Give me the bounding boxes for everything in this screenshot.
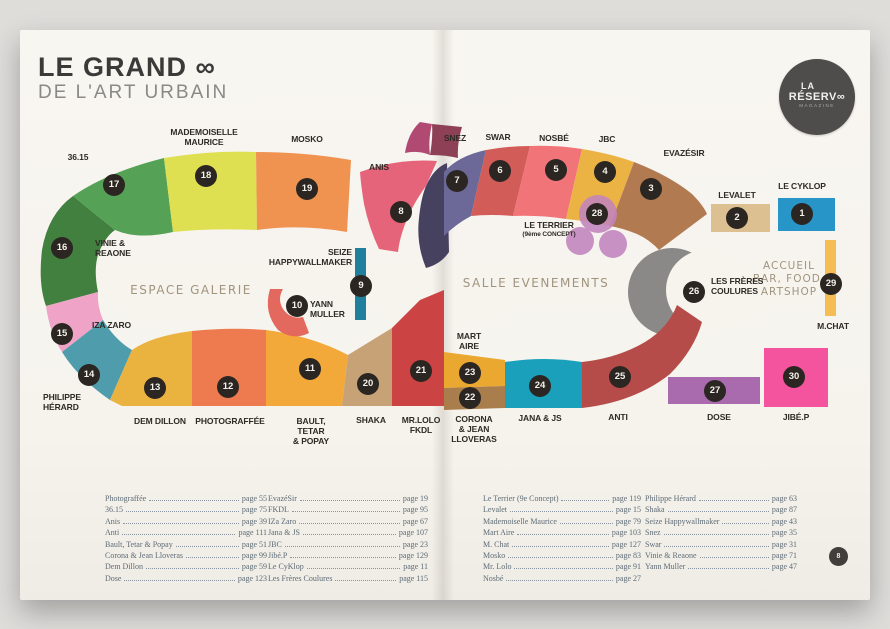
page-title: LE GRAND ∞ DE L'ART URBAIN (38, 52, 228, 104)
toc-name: M. Chat (483, 540, 509, 549)
toc-leader (124, 574, 234, 581)
booth-22-label: CORONA & JEAN LLOVERAS (451, 414, 496, 444)
booth-9-badge: 9 (350, 275, 372, 297)
toc-page: page 43 (772, 517, 797, 526)
booth-26-label: LES FRÈRES COULURES (711, 276, 763, 296)
toc-page: page 47 (772, 562, 797, 571)
toc-entry: Dem Dillonpage 59 (105, 562, 267, 573)
toc-entry: M. Chatpage 127 (483, 540, 641, 551)
toc-name: Vinie & Reaone (645, 551, 697, 560)
toc-column-4: Philippe Hérardpage 63 Shakapage 87 Seiz… (645, 494, 797, 574)
toc-entry: Jana & JSpage 107 (268, 528, 428, 539)
zone-label-accueil: ACCUEIL BAR, FOOD, ARTSHOP (753, 260, 825, 299)
toc-page: page 27 (616, 574, 641, 583)
toc-page: page 19 (403, 494, 428, 503)
toc-entry: JBCpage 23 (268, 540, 428, 551)
toc-entry: Shakapage 87 (645, 505, 797, 516)
booth-12-badge: 12 (217, 376, 239, 398)
toc-name: Bault, Tetar & Popay (105, 540, 173, 549)
toc-leader (664, 540, 768, 547)
toc-page: page 11 (403, 562, 428, 571)
toc-entry: Mademoiselle Mauricepage 79 (483, 517, 641, 528)
toc-entry: Jibé.Ppage 129 (268, 551, 428, 562)
toc-name: Jibé.P (268, 551, 287, 560)
toc-page: page 67 (403, 517, 428, 526)
toc-leader (664, 528, 769, 535)
booth-28-badge: 28 (586, 203, 608, 225)
booth-2-badge: 2 (726, 207, 748, 229)
title-line1: LE GRAND ∞ (38, 52, 228, 82)
booth-16-label: VINIE & REAONE (95, 238, 131, 258)
booth-14-badge: 14 (78, 364, 100, 386)
booth-3-badge: 3 (640, 178, 662, 200)
booth-16-badge: 16 (51, 237, 73, 259)
booth-13-label: DEM DILLON (134, 416, 186, 426)
toc-leader (506, 574, 612, 581)
toc-entry: Moskopage 83 (483, 551, 641, 562)
booth-30-badge: 30 (783, 366, 805, 388)
booth-7-label: SNEZ (444, 133, 466, 143)
toc-entry: Philippe Hérardpage 63 (645, 494, 797, 505)
booth-2-label: LEVALET (718, 190, 755, 200)
toc-page: page 35 (772, 528, 797, 537)
toc-name: Seize Happywallmaker (645, 517, 719, 526)
toc-page: page 63 (772, 494, 797, 503)
toc-entry: Antipage 111 (105, 528, 267, 539)
booth-21-shape (392, 290, 444, 406)
toc-leader (299, 517, 400, 524)
toc-entry: Anispage 39 (105, 517, 267, 528)
toc-leader (123, 517, 239, 524)
booth-11-badge: 11 (299, 358, 321, 380)
toc-column-3: Le Terrier (9e Concept)page 119 Levaletp… (483, 494, 641, 585)
booth-18-badge: 18 (195, 165, 217, 187)
toc-leader (688, 562, 769, 569)
magazine-photo: LE GRAND ∞ DE L'ART URBAIN LA RÉSERV∞ MA… (0, 0, 890, 629)
toc-leader (668, 505, 769, 512)
toc-name: Yann Muller (645, 562, 685, 571)
booth-17-badge: 17 (103, 174, 125, 196)
toc-page: page 83 (616, 551, 641, 560)
toc-page: page 129 (399, 551, 428, 560)
booth-10-badge: 10 (286, 295, 308, 317)
toc-name: Jana & JS (268, 528, 300, 537)
toc-page: page 127 (612, 540, 641, 549)
toc-leader (508, 551, 613, 558)
toc-entry: Snezpage 35 (645, 528, 797, 539)
toc-name: 36.15 (105, 505, 123, 514)
booth-11-label: BAULT, TETAR & POPAY (293, 416, 329, 446)
toc-leader (290, 551, 396, 558)
booth-26-badge: 26 (683, 281, 705, 303)
booth-13-badge: 13 (144, 377, 166, 399)
toc-name: Nosbé (483, 574, 503, 583)
zone-label-salle-evenements: SALLE EVENEMENTS (463, 276, 610, 290)
toc-leader (292, 505, 400, 512)
toc-page: page 55 (242, 494, 267, 503)
toc-entry: 36.15page 75 (105, 505, 267, 516)
toc-leader (285, 540, 400, 547)
toc-page: page 79 (616, 517, 641, 526)
toc-entry: Bault, Tetar & Popaypage 51 (105, 540, 267, 551)
toc-leader (186, 551, 239, 558)
booth-30-label: JIBÉ.P (783, 412, 809, 422)
booth-27-badge: 27 (704, 380, 726, 402)
title-line2: DE L'ART URBAIN (38, 82, 228, 104)
toc-name: Anti (105, 528, 119, 537)
toc-page: page 91 (616, 562, 641, 571)
booth-21-label: MR.LOLO FKDL (402, 415, 441, 435)
toc-name: Photograffée (105, 494, 146, 503)
booth-28-label-main: LE TERRIER (524, 220, 574, 230)
toc-page: page 51 (242, 540, 267, 549)
toc-entry: IZa Zaropage 67 (268, 517, 428, 528)
toc-page: page 115 (399, 574, 428, 583)
toc-name: Shaka (645, 505, 665, 514)
booth-4-label: JBC (599, 134, 616, 144)
toc-page: page 107 (399, 528, 428, 537)
booth-4-badge: 4 (594, 161, 616, 183)
toc-column-2: EvazéSirpage 19 FKDLpage 95 IZa Zaropage… (268, 494, 428, 585)
toc-leader (146, 562, 239, 569)
toc-page: page 99 (242, 551, 267, 560)
toc-page: page 95 (403, 505, 428, 514)
booth-24-label: JANA & JS (518, 413, 561, 423)
toc-page: page 119 (612, 494, 641, 503)
toc-leader (561, 494, 609, 501)
toc-leader (126, 505, 239, 512)
toc-leader (176, 540, 239, 547)
toc-name: Anis (105, 517, 120, 526)
logo-line1: LA (779, 81, 855, 91)
toc-entry: Yann Mullerpage 47 (645, 562, 797, 573)
booth-19-badge: 19 (296, 178, 318, 200)
toc-entry: Corona & Jean Lloveraspage 99 (105, 551, 267, 562)
toc-name: Philippe Hérard (645, 494, 696, 503)
booth-18-label: MADEMOISELLE MAURICE (170, 127, 237, 147)
logo-line3: MAGAZINE (779, 103, 855, 108)
booth-10-label: YANN MULLER (310, 299, 345, 319)
toc-name: Dem Dillon (105, 562, 143, 571)
booth-20-label: SHAKA (356, 415, 386, 425)
booth-17-label: 36.15 (68, 152, 89, 162)
booth-21-badge: 21 (410, 360, 432, 382)
toc-name: Levalet (483, 505, 507, 514)
toc-leader (300, 494, 400, 501)
toc-page: page 15 (616, 505, 641, 514)
toc-name: Mademoiselle Maurice (483, 517, 557, 526)
booth-23-badge: 23 (459, 362, 481, 384)
toc-page: page 87 (772, 505, 797, 514)
toc-leader (122, 528, 235, 535)
booth-29-badge: 29 (820, 273, 842, 295)
toc-name: Dose (105, 574, 121, 583)
logo-line2: RÉSERV∞ (779, 91, 855, 103)
toc-entry: Swarpage 31 (645, 540, 797, 551)
booth-25-badge: 25 (609, 366, 631, 388)
booth-6-badge: 6 (489, 160, 511, 182)
zone-label-espace-galerie: ESPACE GALERIE (130, 283, 252, 297)
toc-name: Swar (645, 540, 661, 549)
page-number-badge: 8 (829, 547, 848, 566)
toc-leader (560, 517, 613, 524)
toc-page: page 39 (242, 517, 267, 526)
toc-page: page 23 (403, 540, 428, 549)
toc-page: page 123 (238, 574, 267, 583)
toc-name: Corona & Jean Lloveras (105, 551, 183, 560)
toc-name: EvazéSir (268, 494, 297, 503)
toc-leader (303, 528, 396, 535)
booth-28-label-sub: (9ème CONCEPT) (522, 230, 575, 240)
toc-name: Snez (645, 528, 661, 537)
toc-leader (149, 494, 239, 501)
booth-3-label: EVAZÉSIR (663, 148, 704, 158)
toc-entry: Le CyKloppage 11 (268, 562, 428, 573)
toc-page: page 103 (612, 528, 641, 537)
toc-page: page 71 (772, 551, 797, 560)
toc-entry: Seize Happywallmakerpage 43 (645, 517, 797, 528)
toc-entry: EvazéSirpage 19 (268, 494, 428, 505)
toc-name: IZa Zaro (268, 517, 296, 526)
toc-name: Mart Aire (483, 528, 514, 537)
booth-27-label: DOSE (707, 412, 731, 422)
booth-1-label: LE CYKLOP (778, 181, 826, 191)
toc-name: Le Terrier (9e Concept) (483, 494, 558, 503)
toc-entry: Mr. Lolopage 91 (483, 562, 641, 573)
toc-entry: Levaletpage 15 (483, 505, 641, 516)
booth-25-label: ANTI (608, 412, 627, 422)
booth-1-badge: 1 (791, 203, 813, 225)
toc-page: page 75 (242, 505, 267, 514)
toc-name: Les Frères Coulures (268, 574, 332, 583)
toc-page: page 31 (772, 540, 797, 549)
booth-14-label: PHILIPPE HÉRARD (43, 392, 81, 412)
booth-18-shape (164, 152, 257, 232)
toc-entry: Mart Airepage 103 (483, 528, 641, 539)
toc-leader (512, 540, 609, 547)
booth-5-label: NOSBÉ (539, 133, 569, 143)
toc-entry: Le Terrier (9e Concept)page 119 (483, 494, 641, 505)
booth-29-label: M.CHAT (817, 321, 849, 331)
booth-20-badge: 20 (357, 373, 379, 395)
toc-leader (517, 528, 609, 535)
booth-6-label: SWAR (485, 132, 510, 142)
booth-28-label: LE TERRIER (9ème CONCEPT) (522, 210, 575, 250)
toc-entry: Dosepage 123 (105, 574, 267, 585)
toc-column-1: Photografféepage 55 36.15page 75 Anispag… (105, 494, 267, 585)
toc-page: page 59 (242, 562, 267, 571)
booth-8-label: ANIS (369, 162, 389, 172)
booth-19-label: MOSKO (291, 134, 323, 144)
booth-8-badge: 8 (390, 201, 412, 223)
toc-leader (700, 551, 769, 558)
toc-name: Mr. Lolo (483, 562, 511, 571)
toc-leader (335, 574, 396, 581)
booth-9-label: SEIZE HAPPYWALLMAKER (232, 247, 352, 267)
toc-name: FKDL (268, 505, 289, 514)
booth-23-label: MART AIRE (457, 331, 481, 351)
toc-leader (699, 494, 769, 501)
toc-name: Mosko (483, 551, 505, 560)
toc-entry: Photografféepage 55 (105, 494, 267, 505)
booth-24-badge: 24 (529, 375, 551, 397)
toc-name: Le CyKlop (268, 562, 304, 571)
toc-leader (510, 505, 613, 512)
la-reservoo-logo: LA RÉSERV∞ MAGAZINE (779, 59, 855, 135)
toc-name: JBC (268, 540, 282, 549)
crossing-magenta-shape (405, 122, 432, 155)
booth-12-label: PHOTOGRAFFÉE (195, 416, 264, 426)
booth-22-badge: 22 (459, 387, 481, 409)
toc-entry: Vinie & Reaonepage 71 (645, 551, 797, 562)
booth-15-label: IZA ZARO (92, 320, 131, 330)
toc-entry: Les Frères Coulurespage 115 (268, 574, 428, 585)
booth-7-badge: 7 (446, 170, 468, 192)
booth-15-badge: 15 (51, 323, 73, 345)
toc-leader (514, 562, 612, 569)
toc-leader (722, 517, 768, 524)
booth-5-badge: 5 (545, 159, 567, 181)
toc-entry: Nosbépage 27 (483, 574, 641, 585)
toc-page: page 111 (238, 528, 267, 537)
toc-entry: FKDLpage 95 (268, 505, 428, 516)
toc-leader (307, 562, 400, 569)
